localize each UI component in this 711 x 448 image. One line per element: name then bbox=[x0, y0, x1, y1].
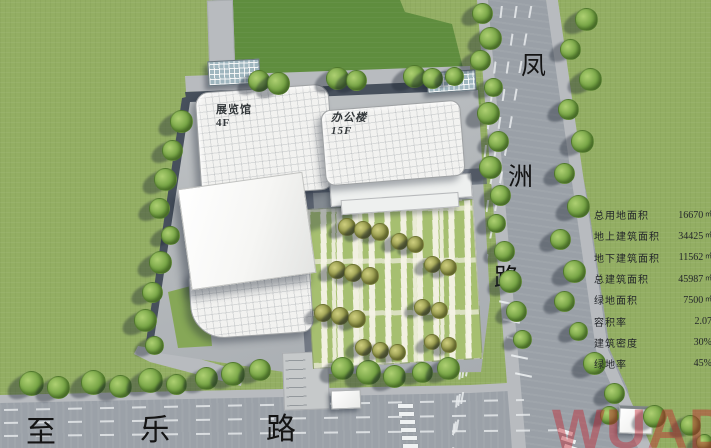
tree bbox=[47, 376, 70, 399]
tree bbox=[346, 70, 367, 91]
olive-tree bbox=[431, 302, 448, 319]
tree bbox=[267, 72, 290, 95]
stat-row: 地下建筑面积11562 ㎡ bbox=[594, 247, 711, 268]
tree bbox=[470, 50, 491, 71]
stat-row: 建筑密度30% bbox=[594, 332, 711, 353]
tree bbox=[479, 156, 502, 179]
stat-label: 绿地率 bbox=[594, 356, 627, 371]
tree bbox=[513, 330, 532, 349]
stat-label: 总建筑面积 bbox=[594, 271, 649, 286]
exhibition-hall-roof-slab bbox=[178, 172, 317, 291]
stat-label: 绿地面积 bbox=[594, 292, 638, 307]
tree bbox=[170, 110, 193, 133]
tree bbox=[488, 131, 509, 152]
stat-unit: ㎡ bbox=[703, 210, 711, 218]
olive-tree bbox=[389, 344, 406, 361]
stat-row: 地上建筑面积34425 ㎡ bbox=[594, 225, 711, 246]
site-plan-rendering: 展览馆 4F 办公楼 15F 凤 洲 路 至 乐 路 总用地面积16670 ㎡地… bbox=[0, 0, 711, 448]
stat-value: 45987 ㎡ bbox=[678, 273, 711, 285]
red-watermark: WUAD bbox=[552, 396, 711, 448]
stat-row: 容积率2.07 bbox=[594, 310, 711, 331]
bottom-road-name-char: 乐 bbox=[140, 405, 170, 448]
tree bbox=[479, 27, 502, 50]
exhibition-hall-floors: 4F bbox=[216, 117, 252, 130]
tree bbox=[161, 226, 180, 245]
tree bbox=[490, 185, 511, 206]
tree bbox=[554, 291, 575, 312]
stat-label: 地上建筑面积 bbox=[594, 228, 660, 243]
tree bbox=[494, 241, 515, 262]
office-building-label: 办公楼 15F bbox=[331, 112, 367, 138]
tree bbox=[134, 309, 157, 332]
tree bbox=[145, 336, 164, 355]
stat-unit: ㎡ bbox=[703, 231, 711, 239]
bottom-road-name-char: 至 bbox=[26, 407, 56, 448]
vertical-road-name-char: 凤 bbox=[521, 46, 546, 82]
olive-tree bbox=[348, 310, 366, 328]
olive-tree bbox=[441, 337, 457, 353]
stat-unit: ㎡ bbox=[703, 274, 711, 282]
stat-label: 地下建筑面积 bbox=[594, 250, 660, 265]
tree bbox=[554, 163, 575, 184]
stat-row: 总建筑面积45987 ㎡ bbox=[594, 268, 711, 289]
exhibition-hall-name: 展览馆 bbox=[216, 104, 252, 117]
tree bbox=[550, 229, 571, 250]
exhibition-hall-label: 展览馆 4F bbox=[216, 104, 252, 130]
tree bbox=[506, 301, 527, 322]
tree bbox=[487, 214, 506, 233]
stat-row: 绿地面积7500 ㎡ bbox=[594, 289, 711, 310]
tree bbox=[563, 260, 586, 283]
top-footpath bbox=[207, 0, 235, 66]
tree bbox=[162, 140, 183, 161]
stat-value: 2.07 bbox=[695, 316, 711, 327]
tree bbox=[567, 195, 590, 218]
tree bbox=[484, 78, 503, 97]
stat-label: 建筑密度 bbox=[594, 335, 638, 350]
tree bbox=[579, 68, 602, 91]
tree bbox=[149, 198, 170, 219]
stat-value: 30% bbox=[694, 337, 711, 348]
tree bbox=[569, 322, 588, 341]
stat-unit: ㎡ bbox=[703, 252, 711, 260]
tree bbox=[154, 168, 177, 191]
tree bbox=[477, 102, 500, 125]
tree bbox=[560, 39, 581, 60]
olive-tree bbox=[361, 267, 379, 285]
olive-tree bbox=[440, 259, 457, 276]
stat-unit: ㎡ bbox=[703, 295, 711, 303]
stat-value: 7500 ㎡ bbox=[683, 294, 711, 306]
tree bbox=[575, 8, 598, 31]
tree bbox=[249, 359, 271, 381]
stat-row: 绿地率45% bbox=[594, 353, 711, 374]
office-building-name: 办公楼 bbox=[331, 112, 367, 125]
gatehouse bbox=[331, 389, 362, 409]
bottom-road-name-char: 路 bbox=[266, 404, 296, 448]
stat-label: 容积率 bbox=[594, 314, 627, 329]
tree bbox=[558, 99, 579, 120]
tree bbox=[499, 270, 522, 293]
tree bbox=[142, 282, 163, 303]
tree bbox=[472, 3, 493, 24]
olive-tree bbox=[407, 236, 424, 253]
stat-row: 总用地面积16670 ㎡ bbox=[594, 204, 711, 225]
tree bbox=[149, 251, 172, 274]
stat-value: 11562 ㎡ bbox=[679, 251, 711, 263]
tree bbox=[437, 357, 460, 380]
vertical-road-name-char: 洲 bbox=[508, 157, 533, 193]
tree bbox=[571, 130, 594, 153]
office-building-floors: 15F bbox=[331, 125, 367, 138]
stat-label: 总用地面积 bbox=[594, 207, 649, 222]
stats-table: 总用地面积16670 ㎡地上建筑面积34425 ㎡地下建筑面积11562 ㎡总建… bbox=[594, 204, 711, 374]
entrance-steps bbox=[285, 354, 307, 407]
stat-value: 34425 ㎡ bbox=[678, 230, 711, 242]
stat-value: 16670 ㎡ bbox=[678, 209, 711, 221]
stat-value: 45% bbox=[694, 358, 711, 369]
